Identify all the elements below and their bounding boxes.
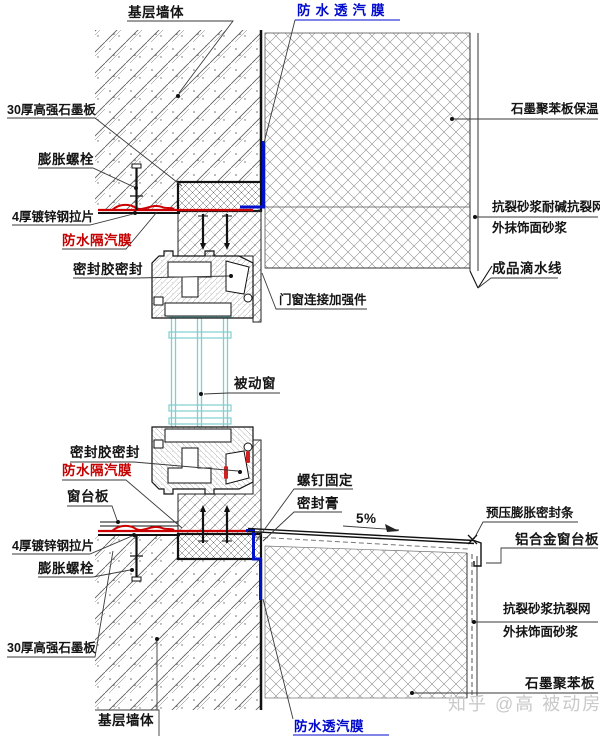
label-steel-strap-top: 4厚镀锌钢拉片 xyxy=(12,211,94,224)
label-expansion-bolt-bottom: 膨胀螺栓 xyxy=(38,562,94,576)
base-wall-bottom-hatch xyxy=(95,536,261,710)
window-frame-head-profile xyxy=(152,251,253,318)
sealant-mark-2 xyxy=(246,451,250,463)
label-vapor-barrier-top: 防水隔汽膜 xyxy=(62,234,132,248)
label-base-wall-top: 基层墙体 xyxy=(128,6,184,20)
drip-edge xyxy=(470,266,492,288)
label-crack-mortar-alkali-mesh: 抗裂砂浆耐碱抗裂网 xyxy=(492,201,600,214)
label-precompressed-seal-strip: 预压膨胀密封条 xyxy=(486,507,574,520)
eps-panel-top xyxy=(265,33,470,268)
label-steel-strap-bottom: 4厚镀锌钢拉片 xyxy=(12,540,94,553)
label-vapor-barrier-bottom: 防水隔汽膜 xyxy=(62,464,132,478)
label-eps-insulation-right: 石墨聚苯板保温 xyxy=(511,103,599,116)
triple-glazing xyxy=(169,311,231,427)
label-screw-fixing: 螺钉固定 xyxy=(297,474,353,488)
label-sealant-seal-top: 密封胶密封 xyxy=(73,263,143,277)
label-finished-drip-line: 成品滴水线 xyxy=(492,262,562,276)
seal-strip-marker xyxy=(468,535,477,544)
label-expansion-bolt-top: 膨胀螺栓 xyxy=(38,153,94,167)
eps-panel-bottom xyxy=(265,546,467,698)
sealant-mark-1 xyxy=(224,466,228,479)
label-vapor-permeable-bottom: 防水透汽膜 xyxy=(294,720,364,734)
label-window-connector: 门窗连接加强件 xyxy=(279,294,367,307)
label-sealant-seal-bottom: 密封胶密封 xyxy=(70,446,140,460)
label-slope-percent: 5% xyxy=(356,512,377,526)
label-graphite-board-bottom: 30厚高强石墨板 xyxy=(7,642,96,655)
label-graphite-board-top: 30厚高强石墨板 xyxy=(7,104,96,117)
label-sill-board: 窗台板 xyxy=(67,490,109,504)
zhihu-watermark: 知乎 @高 被动房 xyxy=(448,695,600,713)
label-base-wall-bottom: 基层墙体 xyxy=(98,714,154,728)
graphite-board-bottom xyxy=(178,534,261,559)
window-frame-sill-profile xyxy=(152,427,253,494)
label-crack-mortar-mesh-bottom: 抗裂砂浆抗裂网 xyxy=(503,603,591,616)
label-passive-window: 被动窗 xyxy=(234,377,276,391)
label-finish-mortar-bottom: 外抹饰面砂浆 xyxy=(503,626,578,639)
label-vapor-permeable-top: 防水透汽膜 xyxy=(297,4,390,18)
label-sealing-paste: 密封膏 xyxy=(297,497,339,511)
slope-arrow xyxy=(385,524,399,532)
label-finish-mortar-top: 外抹饰面砂浆 xyxy=(492,222,567,235)
label-eps-board-bottom: 石墨聚苯板 xyxy=(525,677,595,691)
label-aluminum-sill-board: 铝合金窗台板 xyxy=(515,533,599,547)
window-detail-diagram: 基层墙体 防水透汽膜 30厚高强石墨板 膨胀螺栓 4厚镀锌钢拉片 防水隔汽膜 密… xyxy=(0,0,600,738)
